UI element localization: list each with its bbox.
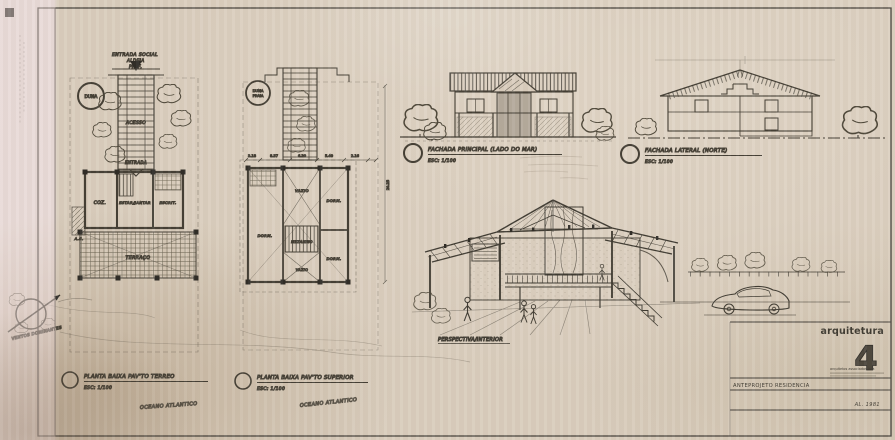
drawing-sheet: ENTRADA SOCIAL ALDEIA PREF. ACESSO ENTRA… (0, 0, 895, 440)
person-figure (464, 297, 472, 321)
bed-right-top-label: DORM. (326, 198, 341, 203)
clerestory-steps (721, 84, 759, 94)
pencil-notes (520, 156, 598, 179)
dune-label: DUNA (85, 94, 98, 100)
dim-5: 2.16 (351, 154, 360, 158)
person-figure (530, 305, 536, 324)
ground-plan-caption: PLANTA BAIXA PAV'TO TERREO (84, 374, 175, 380)
floorboards (412, 300, 700, 335)
service-counter (155, 174, 181, 190)
sheet-frame (5, 8, 891, 436)
facade-side-scale: ESC: 1/100 (645, 159, 673, 165)
dune-label-upper-1: DUNA (253, 89, 264, 93)
void-top-label: VAZIO (295, 188, 309, 193)
project-title: ANTEPROJETO RESIDENCIA (733, 383, 810, 389)
room-terrace-label: TERRAÇO (126, 255, 151, 261)
compass-circle (16, 299, 46, 329)
ocean-label-2: OCEANO ATLANTICO (300, 397, 358, 409)
dim-2: 8.37 (270, 154, 278, 158)
beach-contours (38, 302, 470, 362)
car-sketch (704, 287, 796, 315)
side-window-3 (765, 118, 778, 130)
closet (250, 170, 276, 186)
mezzanine-label: MEZANINO (291, 240, 313, 244)
interior-stair (119, 174, 133, 196)
bed-left-label: DORM. (257, 233, 272, 238)
room-living-label: ESTAR/JANTAR (119, 200, 151, 205)
side-window-2 (765, 100, 778, 112)
facade-side: FACHADA LATERAL (NORTE) ESC: 1/100 (621, 56, 888, 165)
firm-address-line (830, 375, 876, 376)
ground-plan-scale: ESC: 1/100 (84, 385, 112, 391)
roof-slopes (660, 70, 820, 96)
sheet-date: AL. 1981 (854, 402, 880, 408)
facade-main-circle (404, 144, 422, 162)
side-window-1 (695, 100, 708, 112)
drawing-canvas: ENTRADA SOCIAL ALDEIA PREF. ACESSO ENTRA… (0, 0, 895, 440)
facade-main: FACHADA PRINCIPAL (LADO DO MAR) ESC: 1/1… (400, 73, 616, 179)
facade-main-caption: FACHADA PRINCIPAL (LADO DO MAR) (428, 147, 537, 153)
dim-1: 3.18 (248, 154, 257, 158)
facade-side-trees (635, 107, 877, 138)
margin-marks (20, 35, 24, 125)
boardwalk-label: ACESSO (125, 120, 146, 126)
ground-floor-plan: ENTRADA SOCIAL ALDEIA PREF. ACESSO ENTRA… (62, 52, 208, 411)
firm-address-line (830, 373, 884, 374)
room-office-label: ESCRIT. (159, 200, 176, 205)
upper-caption-circle (235, 373, 251, 389)
facade-side-circle (621, 145, 639, 163)
dim-4: 5.40 (325, 154, 334, 158)
dim-right: 20.25 (386, 180, 390, 190)
facade-side-caption: FACHADA LATERAL (NORTE) (645, 148, 728, 154)
upper-floor-plan: DUNA PRAIA 3.18 8.37 6.20 5.40 2.16 20.2… (235, 68, 390, 409)
person-figure (521, 301, 528, 323)
veranda-left (457, 117, 493, 137)
dune-circle-upper (246, 81, 270, 105)
bed-right-bottom-label: DORM. (326, 256, 341, 261)
title-block: arquitetura 4 arquitetos associados ltda… (730, 322, 891, 436)
left-shrubs (414, 292, 451, 323)
roof-gable (497, 200, 612, 232)
arch-brace (640, 250, 668, 282)
registration-mark (5, 8, 14, 17)
firm-brand: arquitetura (820, 326, 884, 337)
firm-line: arquitetos associados ltda (830, 367, 874, 371)
glazing-strip (497, 93, 531, 137)
upper-plan-caption: PLANTA BAIXA PAV'TO SUPERIOR (257, 375, 354, 381)
facade-main-scale: ESC: 1/100 (428, 158, 456, 164)
dune-label-upper-2: PRAIA (253, 94, 264, 98)
upper-plan-scale: ESC: 1/100 (257, 386, 285, 392)
ground-caption-circle (62, 372, 78, 388)
dim-3: 6.20 (298, 154, 307, 158)
entrance-label: ENTRADA (125, 160, 147, 165)
mezzanine-stair (285, 226, 318, 252)
ocean-label-1: OCEANO ATLANTICO (140, 401, 198, 411)
veranda-right (535, 117, 571, 137)
room-kitchen-label: COZ. (94, 200, 107, 206)
roadside-shrubs (692, 252, 837, 272)
perspective-caption: PERSPECTIVA/INTERIOR (438, 337, 503, 343)
void-bottom-label: VAZIO (296, 268, 308, 272)
wind-compass: VENTOS DOMINANTES (8, 293, 92, 341)
